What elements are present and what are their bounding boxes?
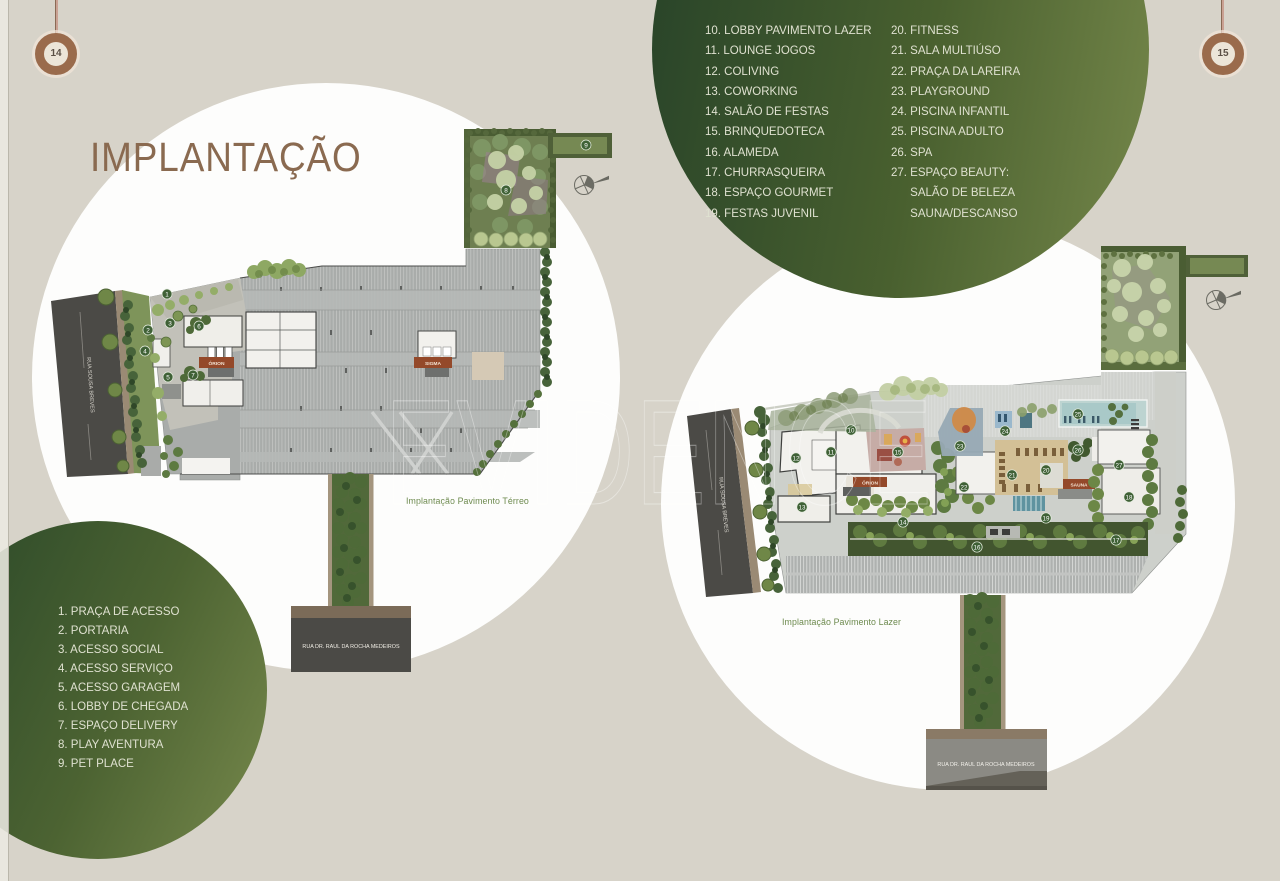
svg-text:8: 8: [504, 187, 508, 194]
svg-text:17: 17: [1113, 537, 1120, 544]
svg-text:20: 20: [1043, 467, 1050, 474]
svg-text:16: 16: [974, 544, 981, 551]
svg-text:9: 9: [584, 142, 588, 149]
svg-text:27: 27: [1116, 462, 1123, 469]
svg-text:21: 21: [1009, 472, 1016, 479]
svg-text:23: 23: [957, 443, 964, 450]
svg-text:5: 5: [166, 374, 170, 381]
svg-text:6: 6: [197, 323, 201, 330]
svg-text:18: 18: [1126, 494, 1133, 501]
svg-text:3: 3: [168, 320, 172, 327]
svg-text:SAUNA: SAUNA: [1070, 483, 1088, 489]
svg-text:26: 26: [1075, 447, 1082, 454]
svg-text:25: 25: [1075, 411, 1082, 418]
svg-text:22: 22: [961, 484, 968, 491]
svg-text:24: 24: [1002, 428, 1009, 435]
svg-text:RUA DR. RAUL DA ROCHA MEDEIROS: RUA DR. RAUL DA ROCHA MEDEIROS: [937, 762, 1035, 768]
svg-text:4: 4: [143, 348, 147, 355]
svg-text:7: 7: [191, 372, 195, 379]
svg-text:1: 1: [165, 291, 169, 298]
svg-text:2: 2: [146, 327, 150, 334]
svg-text:19: 19: [1043, 515, 1050, 522]
svg-text:RUA DR. RAUL DA ROCHA MEDEIROS: RUA DR. RAUL DA ROCHA MEDEIROS: [302, 644, 400, 650]
